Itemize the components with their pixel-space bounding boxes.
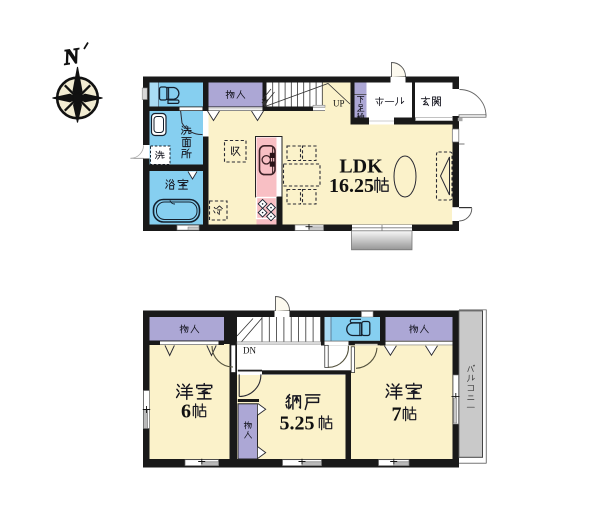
svg-text:7: 7 — [392, 404, 402, 426]
svg-text:DN: DN — [243, 346, 256, 356]
svg-text:UP: UP — [333, 99, 345, 109]
svg-text:5.25: 5.25 — [280, 413, 315, 435]
svg-text:16.25: 16.25 — [329, 175, 374, 197]
svg-text:6: 6 — [181, 401, 191, 423]
